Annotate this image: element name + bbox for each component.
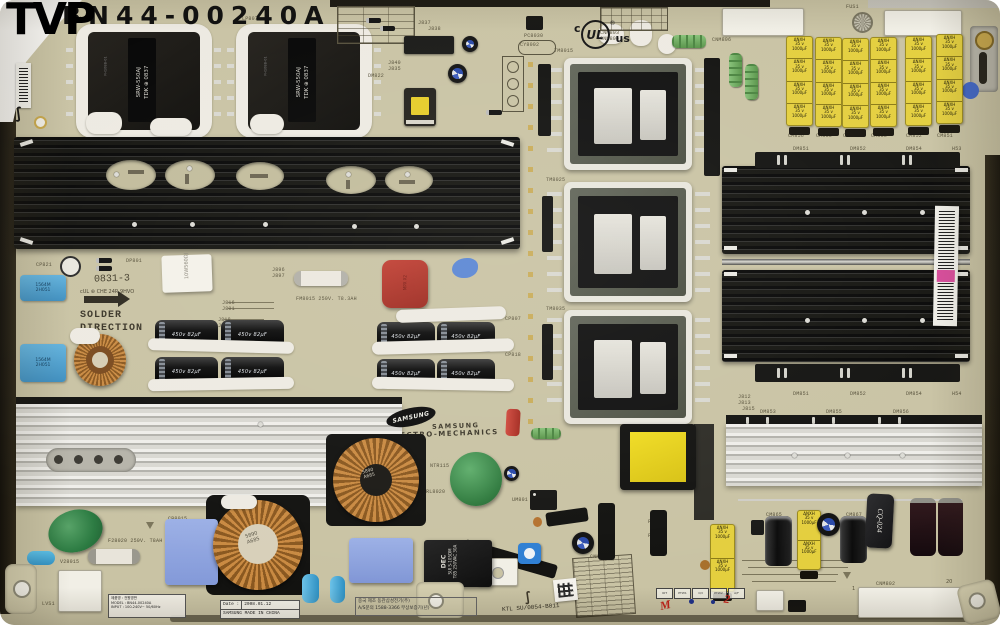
tab-1 — [538, 64, 551, 136]
toroid-small — [74, 334, 126, 386]
connector-cnm803 — [722, 8, 804, 36]
mount-hole-top-left — [34, 116, 47, 129]
yellow-cap-column-1: ΔNXH 35 v 1000µFΔNXH 35 v 1000µFΔNXH 35 … — [786, 36, 813, 126]
solder-arrow — [84, 296, 118, 303]
korean-stamp-box: 중국 제조 동관삼성전기(주) A/S문의 1588-3366 무상보증기(년) — [355, 597, 477, 616]
transformer-2-label-text: SRW-550AJ TDK ⊕ 0837 — [295, 40, 312, 122]
transformer-1-drip2 — [150, 118, 192, 136]
connector-cnm804 — [884, 10, 962, 36]
blue-glue-blob — [452, 258, 478, 278]
barcode-pink-band — [937, 270, 955, 282]
tab-3 — [542, 324, 553, 380]
left-barcode-sticker — [16, 63, 31, 108]
made-in: SAMSUNG MADE IN CHINA — [221, 610, 299, 617]
silicone-strip-1 — [148, 338, 294, 354]
electrolytic-cap-small-4 — [572, 532, 594, 554]
silicone-strip-2 — [148, 377, 294, 392]
keyhole-bottom-left — [5, 564, 37, 614]
diode-5 — [96, 266, 112, 271]
ceramic-resistor: 10W560ΩJ — [161, 254, 212, 293]
qr-pattern — [557, 582, 573, 597]
electrolytic-cap-small-3 — [504, 466, 519, 481]
yellow-transformer-tape — [630, 432, 686, 482]
electrolytic-cap-small-1 — [462, 36, 478, 52]
connector-small-1 — [756, 590, 784, 611]
blue-inspection-dot — [962, 82, 979, 99]
transformer-1-side-text: FH108B-01 — [104, 56, 108, 75]
power-supply-board: BN44-00240A c UL ® us ∫ ∫ SRW-550AJ TDK … — [0, 0, 1000, 625]
diode-3 — [486, 110, 502, 115]
trace-bar-3 — [598, 503, 615, 560]
power-resistor-v2 — [745, 64, 758, 100]
trace-bar-4 — [650, 510, 667, 556]
right-heatsink-upper — [722, 166, 970, 254]
yellow-cap-column-6: ΔNXH 35 v 1000µFΔNXH 35 v 1000µFΔNXH 35 … — [936, 34, 963, 124]
heatsink-window-2 — [165, 160, 215, 190]
dip-ic-8pin — [530, 490, 557, 510]
connector-lvs1 — [58, 570, 102, 612]
diode-strip-top — [755, 152, 960, 168]
red-film-cap: MPX X2 — [382, 260, 428, 308]
heatsink-window-5 — [385, 166, 433, 194]
maroon-cap-2 — [938, 498, 963, 556]
tab-2 — [542, 196, 553, 252]
yellow-cap-column-3: ΔNXH 35 v 1000µFΔNXH 35 v 1000µFΔNXH 35 … — [842, 38, 869, 128]
right-edge-bar — [985, 155, 1000, 615]
toroid-big: 5890 A685 — [213, 500, 303, 590]
inspection-dot-1 — [689, 599, 694, 604]
tvp-watermark: TVP — [6, 0, 93, 45]
right-silver-heatsink — [726, 424, 982, 486]
connector-small-2 — [788, 600, 806, 612]
inspection-dot-2 — [711, 600, 715, 604]
diode-4 — [96, 258, 112, 263]
date-label: Date : — [221, 601, 242, 609]
pin1-label: 1 — [852, 586, 855, 592]
heatsink-window-3 — [236, 162, 284, 190]
red-standoff — [505, 409, 520, 437]
blue-film-cap-1: 1564M 2H051 — [20, 275, 66, 301]
connector-cnm802 — [858, 587, 964, 618]
pinout-table-silk — [572, 554, 636, 618]
spec-box: 제품명 : 전원명판MODEL : BN44-00240AINPUT : 100… — [108, 594, 186, 618]
trimmer-pot — [518, 543, 541, 564]
pcb-photo: BN44-00240A c UL ® us ∫ ∫ SRW-550AJ TDK … — [0, 0, 1000, 625]
heatsink-mid-rail — [722, 259, 970, 265]
bridge-rectifier — [46, 448, 136, 472]
power-resistor-v1 — [729, 53, 742, 87]
yellow-cap-column-4: ΔNXH 35 v 1000µFΔNXH 35 v 1000µFΔNXH 35 … — [870, 37, 897, 127]
photocoupler — [526, 16, 543, 30]
transformer-1-pins-right — [214, 48, 221, 124]
cp-disc-cap — [60, 256, 81, 277]
mini-transformer-yellow — [404, 88, 436, 126]
right-barcode-sticker — [933, 206, 959, 326]
dip-ic-14pin — [404, 36, 454, 54]
handwritten-m: M — [659, 597, 673, 614]
yellow-cap-column-2: ΔNXH 35 v 1000µFΔNXH 35 v 1000µFΔNXH 35 … — [815, 37, 842, 127]
pin20-label: 20 — [946, 579, 952, 585]
cq-handwriting: CQ-024 — [874, 498, 885, 542]
blue-film-cap-2: 1564M 2H051 — [20, 344, 66, 382]
squiggle-mark-2: ∫ — [523, 589, 534, 605]
transformer-2-pins-left — [227, 48, 234, 124]
cq-block: CQ-024 — [865, 493, 895, 548]
blue-block-2 — [349, 538, 413, 583]
toroid-center: 5890 A685 — [333, 438, 419, 522]
maroon-cap-1 — [910, 498, 936, 556]
cap-vert-1 — [765, 516, 792, 566]
transformer-1-label-text: SRW-550AJ TDK ⊕ 0837 — [135, 40, 152, 122]
date-value: 2008.01.12 — [242, 601, 273, 609]
silicone-strip-4 — [372, 377, 514, 391]
date-sticker: Date : 2008.01.12 SAMSUNG MADE IN CHINA — [220, 600, 300, 619]
transformer-1-drip — [86, 112, 122, 134]
date-stamp: 0831-3 — [94, 273, 130, 285]
relay: DEC SUI S-105DM T85 250VAC 30A — [424, 540, 492, 587]
top-right-strip — [868, 0, 1000, 8]
bar-right-of-column — [704, 58, 720, 176]
fuse-f28020 — [88, 549, 140, 564]
main-heatsink — [14, 137, 520, 249]
fuse-fm8015 — [294, 271, 348, 286]
smps-transformer-3 — [564, 310, 692, 424]
blue-mini-cap-2 — [330, 576, 345, 603]
part-number: BN44-00240A — [62, 1, 330, 30]
korean-line-1: 중국 제조 동관삼성전기(주) — [358, 599, 474, 606]
solder-arrow-head — [118, 291, 130, 307]
korean-line-2: A/S문의 1588-3366 무상보증기(년) — [358, 606, 474, 613]
transformer-2-drip — [250, 114, 284, 134]
ul-us: us — [616, 32, 630, 45]
yellow-cap-column-5: ΔNXH 35 v 1000µFΔNXH 35 v 1000µFΔNXH 35 … — [905, 36, 932, 126]
heatsink-window-1 — [106, 160, 156, 190]
silicone-strip-3 — [372, 338, 514, 355]
blue-mini-cap-1 — [302, 574, 319, 603]
smps-transformer-1 — [564, 58, 692, 170]
diode-2 — [380, 26, 395, 31]
ul-circle: UL — [581, 20, 610, 49]
silk-strip-circles — [502, 56, 524, 112]
ul-certification-mark: c UL ® us — [574, 20, 630, 49]
transformer-2-label: SRW-550AJ TDK ⊕ 0837 — [288, 38, 316, 122]
green-disc-cap — [450, 452, 502, 506]
dark-column-right-of-yellow — [694, 424, 714, 520]
disc-cap-brown-1 — [533, 517, 542, 527]
silicone-blob-caps — [396, 306, 506, 323]
heatsink-window-4 — [326, 166, 376, 194]
transistor-small — [751, 520, 764, 535]
blue-oval-cap — [27, 551, 55, 565]
electrolytic-cap-small-2 — [448, 64, 467, 83]
qr-sticker — [553, 578, 578, 602]
disc-cap-brown-2 — [700, 560, 710, 570]
cap-vert-2 — [840, 516, 867, 563]
green-resistor-mid — [531, 428, 561, 439]
yellow-cap-vert-1: ΔNXH 35 v 1000µFΔNXH 35 v 1000µF — [710, 524, 735, 592]
ul-c: c — [574, 22, 581, 35]
power-resistor-h1 — [672, 35, 706, 48]
transformer-1-label: SRW-550AJ TDK ⊕ 0837 — [128, 38, 156, 122]
fuse-holder-cap — [852, 12, 873, 33]
barcode-lines — [937, 210, 955, 320]
electrolytic-cap-small-5 — [817, 513, 840, 536]
smps-transformer-2 — [564, 182, 692, 302]
transformer-2-pins-right — [374, 48, 381, 124]
diode-strip-bottom — [755, 364, 960, 382]
blue-square-cap — [165, 519, 218, 585]
barcode-lines — [19, 66, 28, 102]
pad-column-left — [528, 62, 533, 434]
transformer-1-pins-left — [66, 48, 73, 124]
diode-1 — [366, 18, 381, 23]
ul-reg-icon: ® — [610, 20, 616, 27]
transformer-2-side-text: FH108B-01 — [264, 56, 268, 75]
